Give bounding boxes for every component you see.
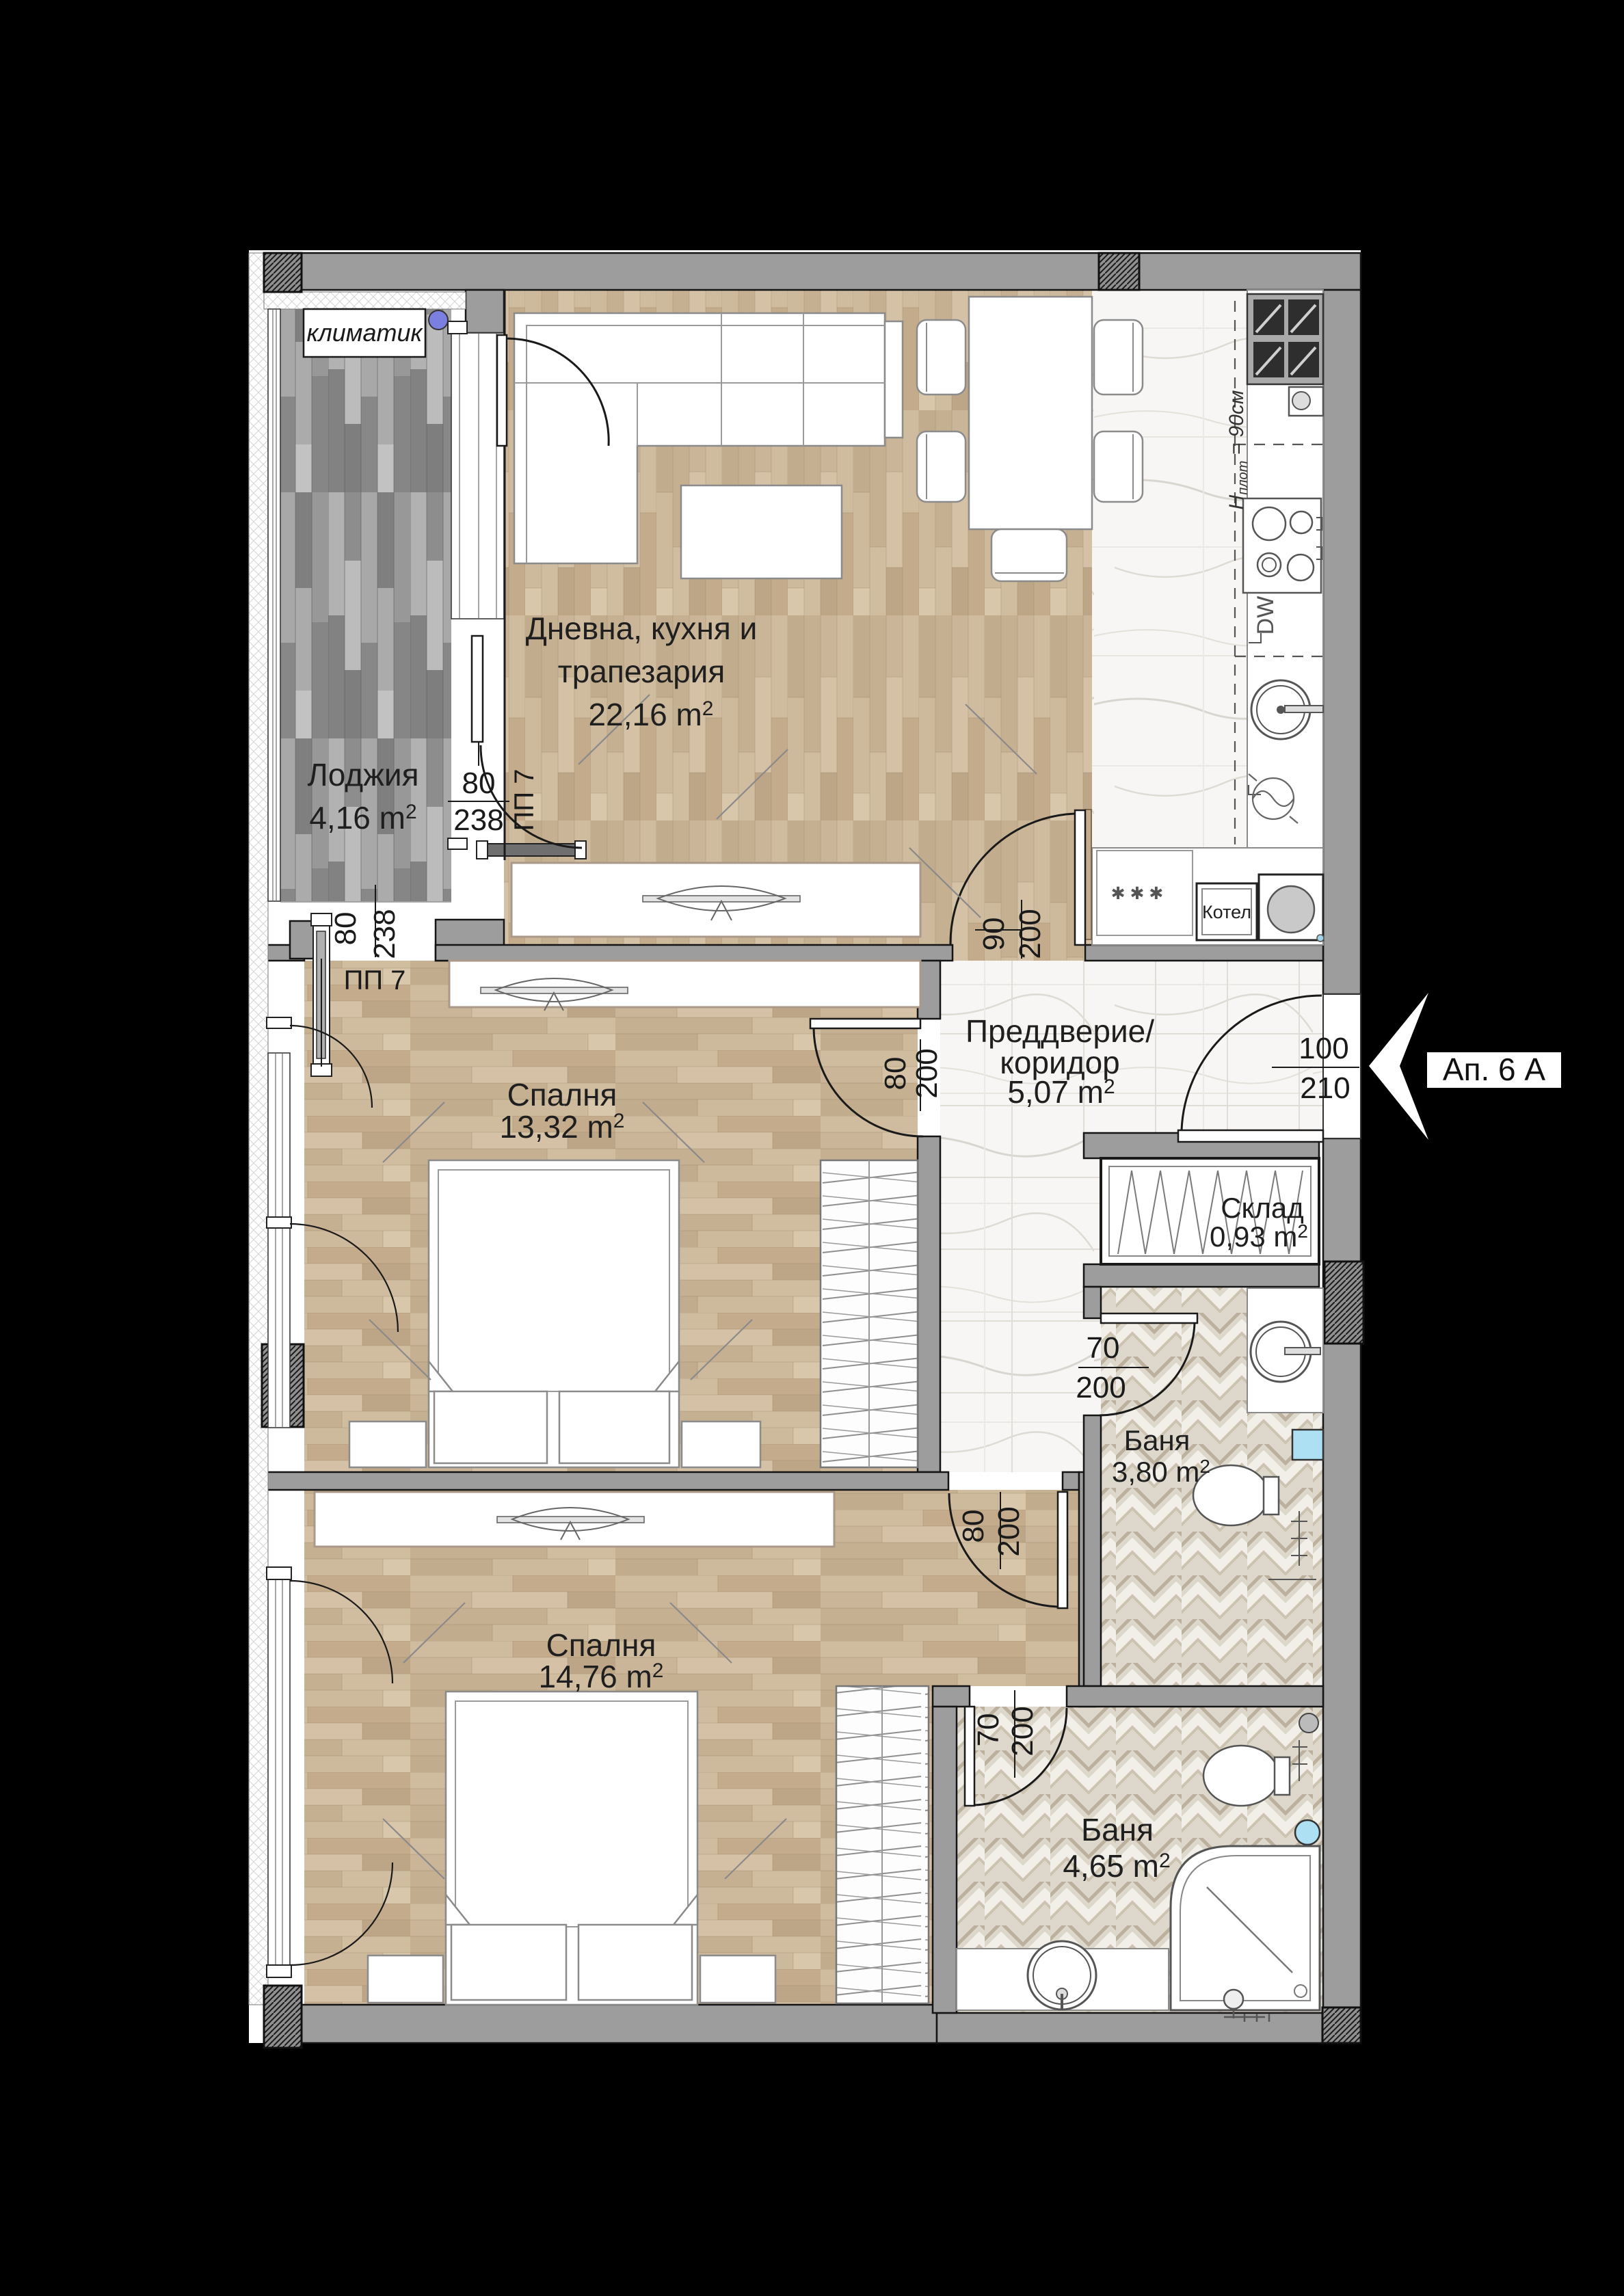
svg-text:Котел: Котел [1202,902,1251,922]
svg-text:✱ ✱ ✱: ✱ ✱ ✱ [1111,884,1164,903]
svg-text:4,65 m2: 4,65 m2 [1063,1848,1170,1884]
svg-text:климатик: климатик [306,319,423,347]
svg-text:Баня: Баня [1081,1812,1154,1847]
svg-text:70: 70 [1087,1331,1120,1365]
svg-text:200: 200 [1006,1706,1039,1756]
svg-text:238: 238 [453,803,503,837]
svg-text:80: 80 [957,1510,990,1543]
svg-text:22,16 m2: 22,16 m2 [589,697,714,732]
svg-text:5,07 m2: 5,07 m2 [1007,1074,1115,1110]
svg-text:200: 200 [1076,1371,1126,1404]
svg-text:Спалня: Спалня [546,1627,656,1663]
svg-text:200: 200 [910,1048,944,1098]
svg-text:200: 200 [992,1506,1026,1556]
svg-text:Склад: Склад [1221,1192,1304,1224]
svg-text:80: 80 [329,912,362,946]
svg-text:Баня: Баня [1124,1424,1190,1456]
svg-text:3,80 m2: 3,80 m2 [1112,1456,1210,1488]
svg-text:Преддверие/: Преддверие/ [966,1013,1154,1049]
svg-text:Лоджия: Лоджия [308,757,419,792]
svg-text:Ап. 6 А: Ап. 6 А [1443,1052,1546,1087]
svg-text:0,93 m2: 0,93 m2 [1210,1220,1308,1253]
svg-text:трапезария: трапезария [558,654,726,689]
svg-text:Спалня: Спалня [507,1077,617,1112]
svg-text:ПП 7: ПП 7 [509,769,540,831]
svg-text:70: 70 [972,1713,1005,1747]
svg-text:14,76 m2: 14,76 m2 [539,1659,664,1694]
svg-text:238: 238 [368,909,401,959]
svg-text:4,16 m2: 4,16 m2 [309,800,416,836]
svg-text:ПП 7: ПП 7 [344,965,406,996]
svg-text:Дневна, кухня и: Дневна, кухня и [526,611,758,646]
svg-text:90: 90 [977,918,1011,951]
svg-text:13,32 m2: 13,32 m2 [500,1109,625,1145]
svg-text:210: 210 [1300,1071,1350,1105]
svg-text:80: 80 [879,1057,912,1091]
svg-text:100: 100 [1299,1032,1348,1065]
svg-text:80: 80 [462,766,496,800]
svg-text:200: 200 [1013,909,1047,959]
svg-text:DW: DW [1253,596,1279,635]
